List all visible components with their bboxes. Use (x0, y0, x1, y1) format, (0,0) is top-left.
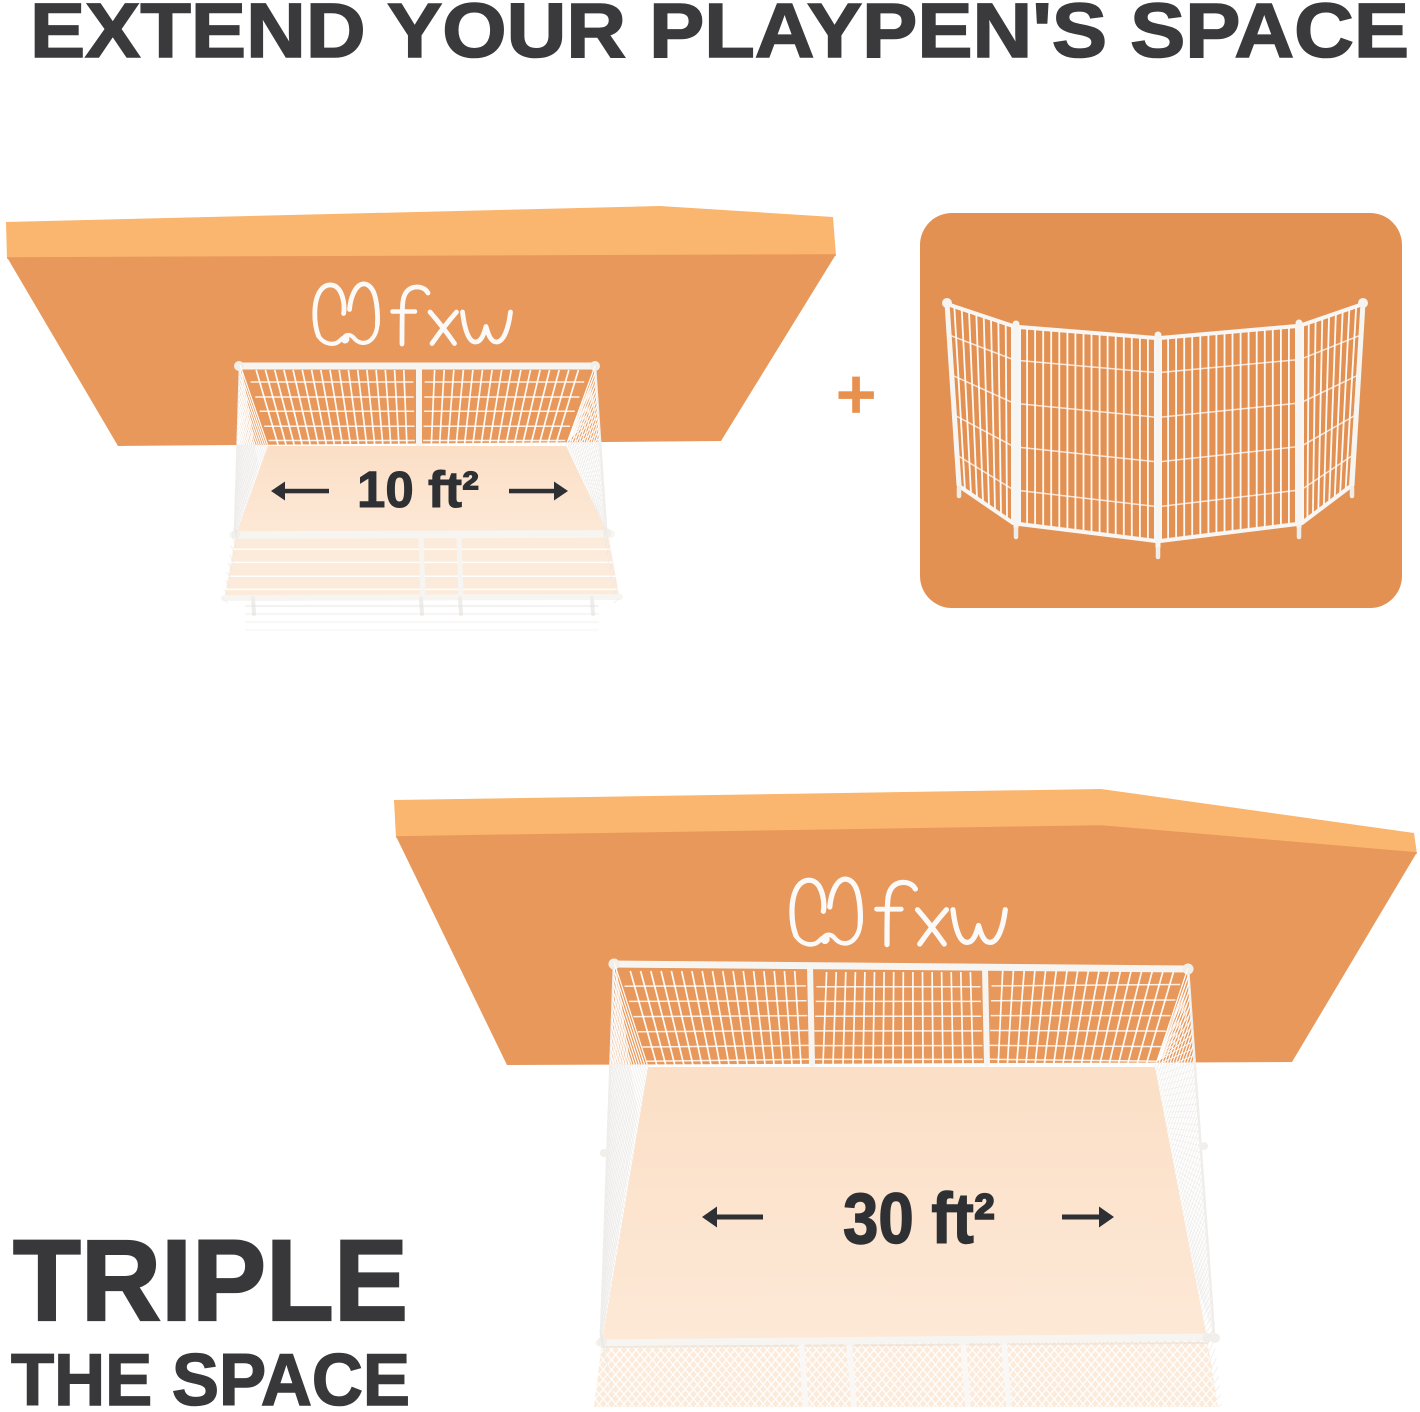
svg-text:TRIPLE: TRIPLE (13, 1217, 408, 1345)
svg-text:30 ft²: 30 ft² (843, 1180, 995, 1259)
svg-text:THE SPACE: THE SPACE (11, 1340, 410, 1407)
svg-text:10 ft²: 10 ft² (357, 461, 479, 518)
svg-text:EXTEND YOUR PLAYPEN'S SPACE: EXTEND YOUR PLAYPEN'S SPACE (30, 0, 1409, 74)
